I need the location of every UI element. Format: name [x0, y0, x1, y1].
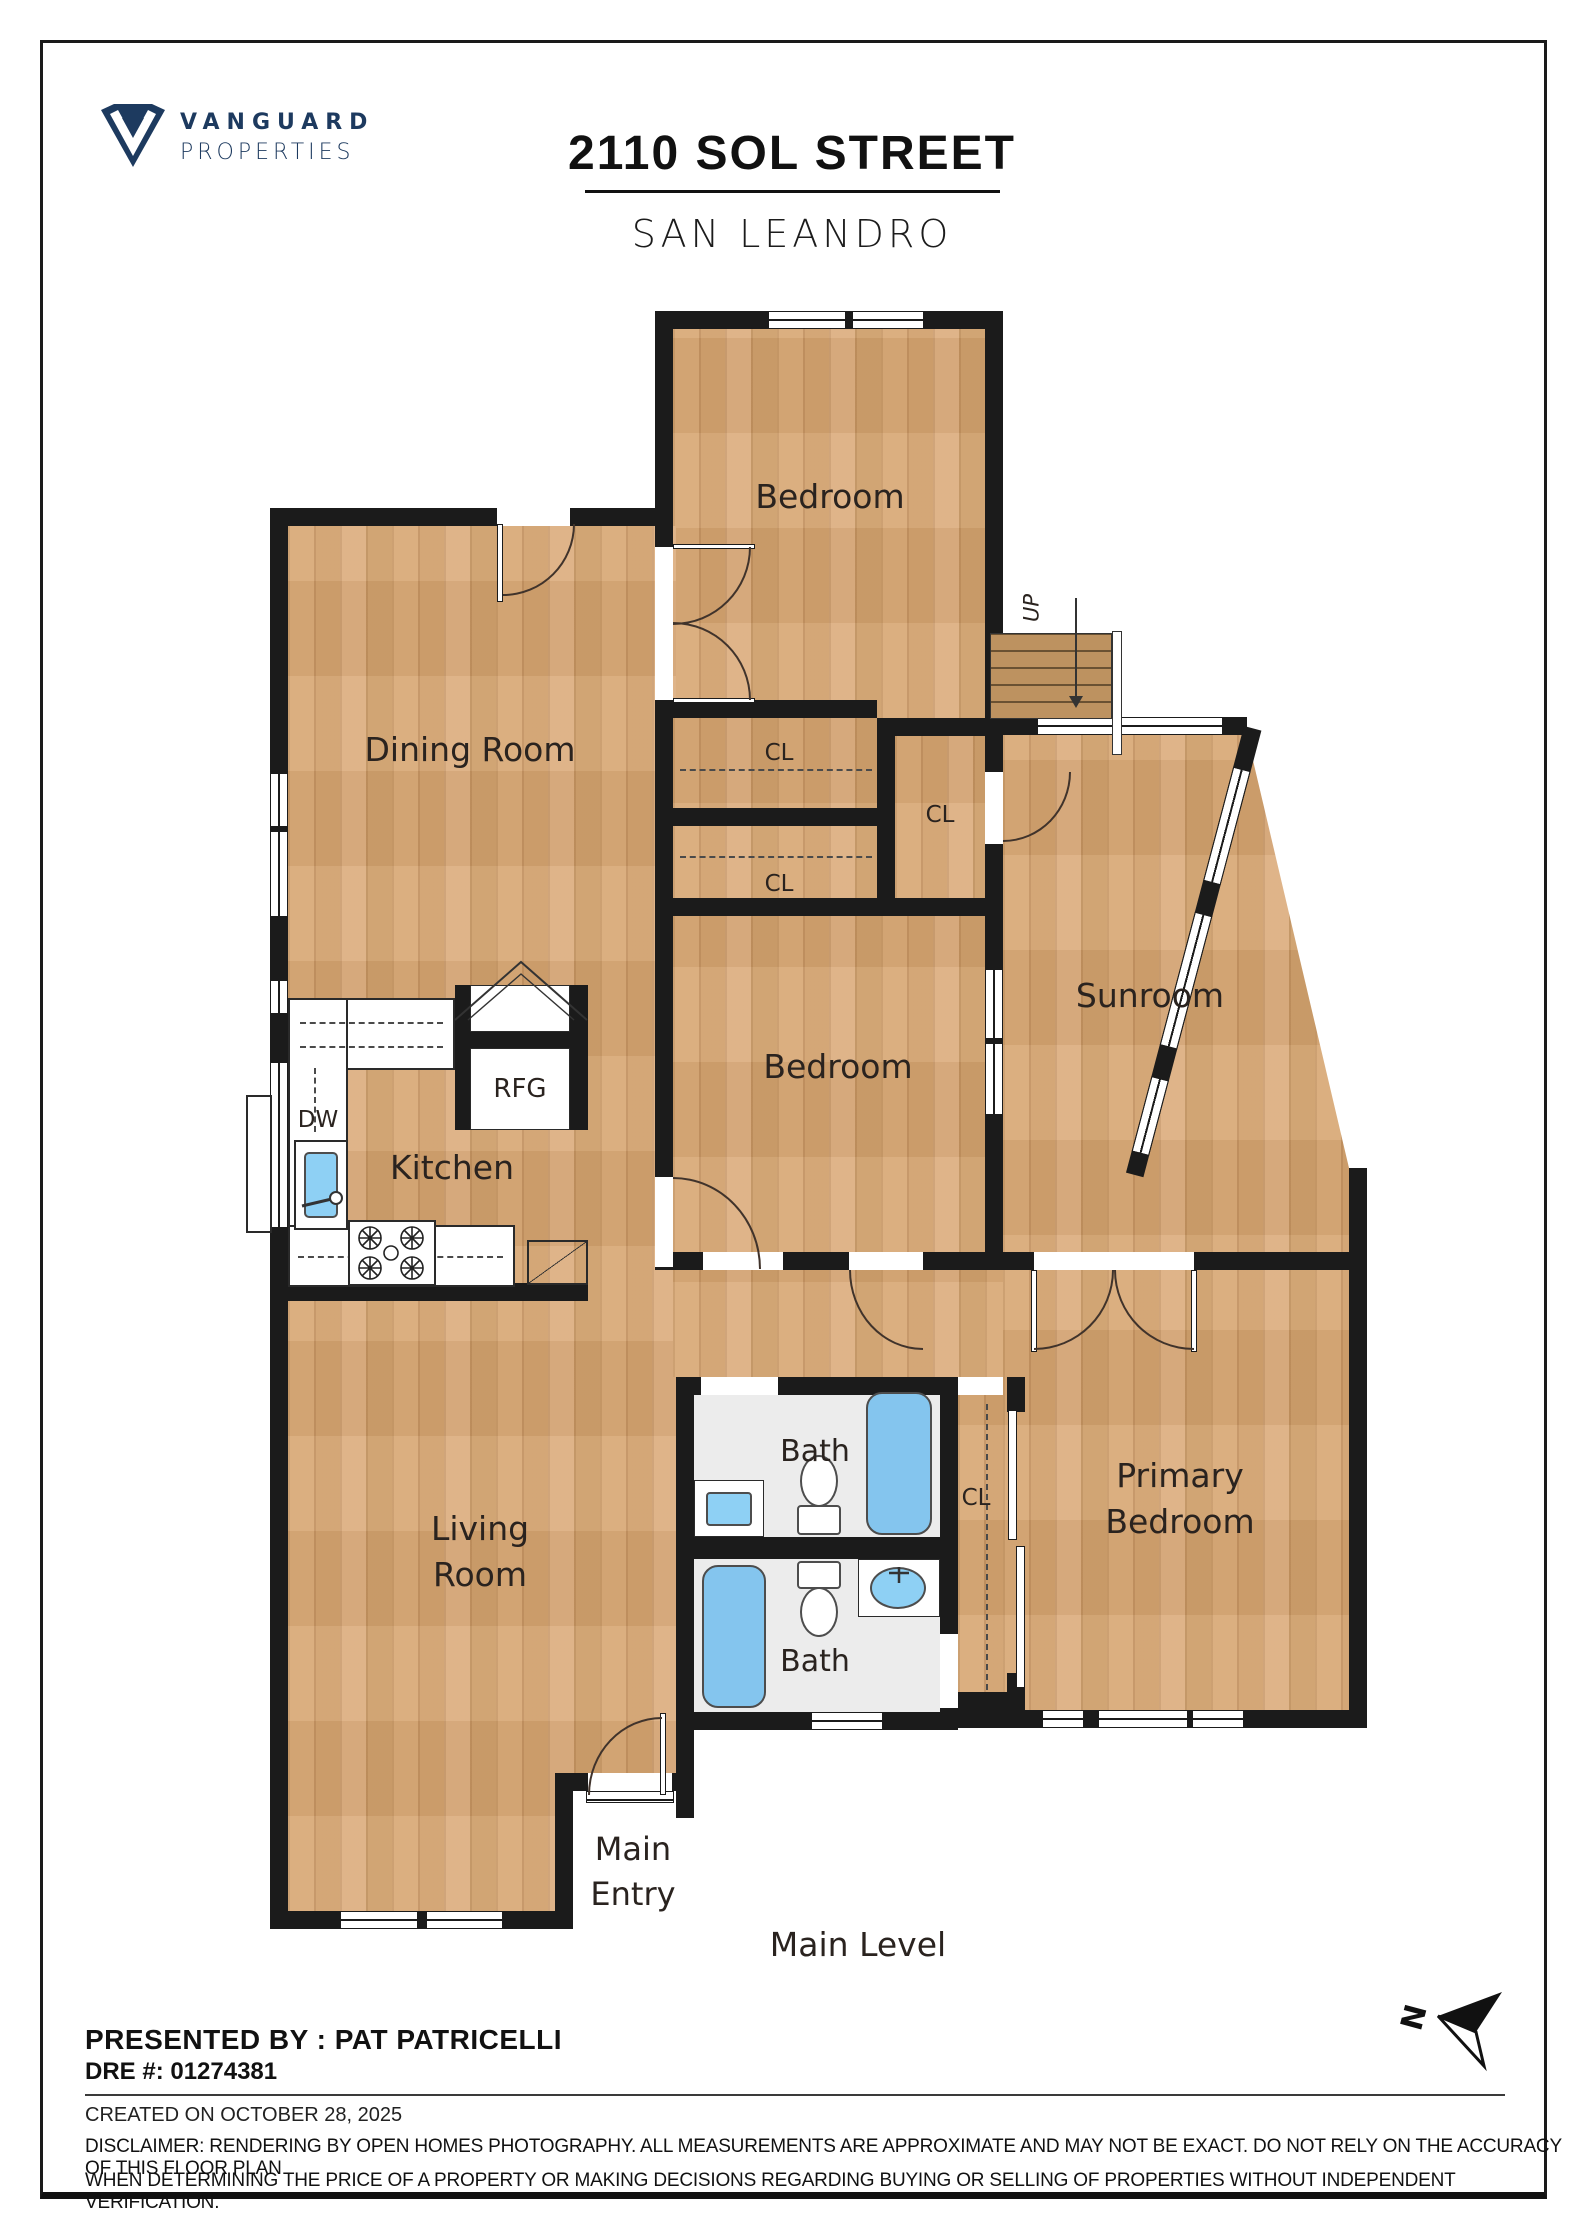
closet-rod-dashed — [680, 769, 872, 771]
stove-burners-icon — [348, 1220, 436, 1286]
window — [985, 969, 1003, 1039]
room-label-bedroom-top: Bedroom — [755, 474, 904, 520]
entry-line2: Entry — [590, 1872, 675, 1917]
wall — [655, 898, 1003, 916]
floor-hall — [673, 1270, 1003, 1377]
wall — [877, 718, 895, 898]
door-opening — [655, 547, 673, 700]
presented-by: PRESENTED BY : PAT PATRICELLI — [85, 2024, 562, 2056]
door-opening — [849, 1252, 923, 1270]
window — [811, 1712, 883, 1730]
wall — [676, 1377, 694, 1818]
wall — [655, 808, 877, 826]
wall — [270, 1911, 573, 1929]
wall — [877, 718, 1003, 736]
stair-rail — [1112, 631, 1122, 755]
cabinet-dashed — [300, 1046, 443, 1048]
window — [270, 831, 288, 917]
window — [270, 773, 288, 827]
closet-label: CL — [765, 868, 794, 900]
window — [852, 311, 924, 329]
footer-divider — [85, 2094, 1505, 2096]
door-opening — [1034, 1252, 1194, 1270]
living-line1: Living — [431, 1506, 529, 1552]
window — [1042, 1710, 1084, 1728]
wall — [555, 1773, 573, 1929]
bathtub — [866, 1392, 932, 1535]
room-label-sunroom: Sunroom — [1076, 973, 1224, 1019]
dishwasher-label: DW — [298, 1104, 338, 1136]
stairs-direction-arrow — [1069, 696, 1083, 708]
window — [768, 311, 846, 329]
bathroom-sink — [706, 1492, 752, 1526]
room-label-bedroom-mid: Bedroom — [763, 1044, 912, 1090]
brand-wordmark: VANGUARD PROPERTIES — [180, 110, 374, 165]
primary-line1: Primary — [1105, 1453, 1254, 1499]
closet-label: CL — [962, 1482, 991, 1514]
wall — [655, 311, 673, 1270]
closet-rod-dashed — [986, 1404, 988, 1690]
disclaimer-line2: WHEN DETERMINING THE PRICE OF A PROPERTY… — [85, 2170, 1584, 2214]
stairs-direction-line — [1075, 598, 1077, 698]
door-opening — [940, 1634, 958, 1708]
window — [340, 1911, 418, 1929]
primary-line2: Bedroom — [1105, 1499, 1254, 1545]
bathtub — [702, 1565, 766, 1708]
window — [1037, 717, 1223, 735]
floor-closet-primary — [958, 1395, 1007, 1710]
faucet-icon — [296, 1180, 346, 1220]
window — [270, 1062, 288, 1228]
room-label-bath-upper: Bath — [780, 1431, 850, 1473]
closet-label: CL — [765, 737, 794, 769]
vanguard-logo-icon — [100, 104, 166, 172]
kitchen-corner-cabinet — [527, 1240, 588, 1285]
door-opening — [655, 1177, 673, 1267]
title-underline — [585, 190, 1000, 193]
window — [270, 980, 288, 1014]
door-opening — [985, 772, 1003, 844]
refrigerator-label: RFG — [493, 1071, 546, 1107]
cabinet-dashed — [300, 1022, 443, 1024]
entry-line1: Main — [590, 1827, 675, 1872]
staircase — [990, 633, 1112, 719]
room-label-entry: Main Entry — [590, 1827, 675, 1917]
north-compass: N — [1398, 1986, 1518, 2080]
brand-line2: PROPERTIES — [180, 140, 374, 165]
room-label-kitchen: Kitchen — [390, 1145, 514, 1191]
window — [1098, 1710, 1188, 1728]
floor-plan-page: VANGUARD PROPERTIES 2110 SOL STREET SAN … — [0, 0, 1584, 2240]
room-label-living: Living Room — [431, 1506, 529, 1598]
wall — [1007, 1377, 1025, 1412]
level-label: Main Level — [770, 1922, 946, 1968]
wall — [455, 1032, 588, 1048]
stairs-up-label: UP — [1017, 594, 1046, 622]
room-label-primary: Primary Bedroom — [1105, 1453, 1254, 1545]
wall — [694, 1537, 958, 1559]
toilet-tank — [797, 1505, 841, 1535]
closet-rod-dashed — [680, 856, 872, 858]
wall — [570, 508, 655, 526]
wall — [1349, 1168, 1367, 1728]
toilet-tank — [797, 1561, 841, 1589]
closet-label: CL — [926, 799, 955, 831]
wall — [270, 508, 497, 526]
living-line2: Room — [431, 1552, 529, 1598]
page-subtitle: SAN LEANDRO — [632, 212, 953, 256]
window — [1192, 1710, 1244, 1728]
vent-chevron-icon — [452, 956, 590, 1022]
wall — [958, 1692, 1025, 1710]
door-opening — [701, 1377, 778, 1395]
faucet-icon — [884, 1563, 914, 1587]
closet-sliding-door — [1008, 1410, 1017, 1540]
toilet-bowl — [800, 1587, 838, 1637]
closet-sliding-door — [1016, 1546, 1025, 1688]
brand-line1: VANGUARD — [180, 110, 374, 135]
room-label-dining: Dining Room — [365, 727, 576, 773]
room-label-bath-lower: Bath — [780, 1641, 850, 1683]
dre-number: DRE #: 01274381 — [85, 2058, 277, 2086]
window — [426, 1911, 503, 1929]
window — [985, 1043, 1003, 1115]
created-date: CREATED ON OCTOBER 28, 2025 — [85, 2104, 402, 2127]
page-title: 2110 SOL STREET — [568, 126, 1016, 181]
bay-window — [246, 1095, 272, 1233]
